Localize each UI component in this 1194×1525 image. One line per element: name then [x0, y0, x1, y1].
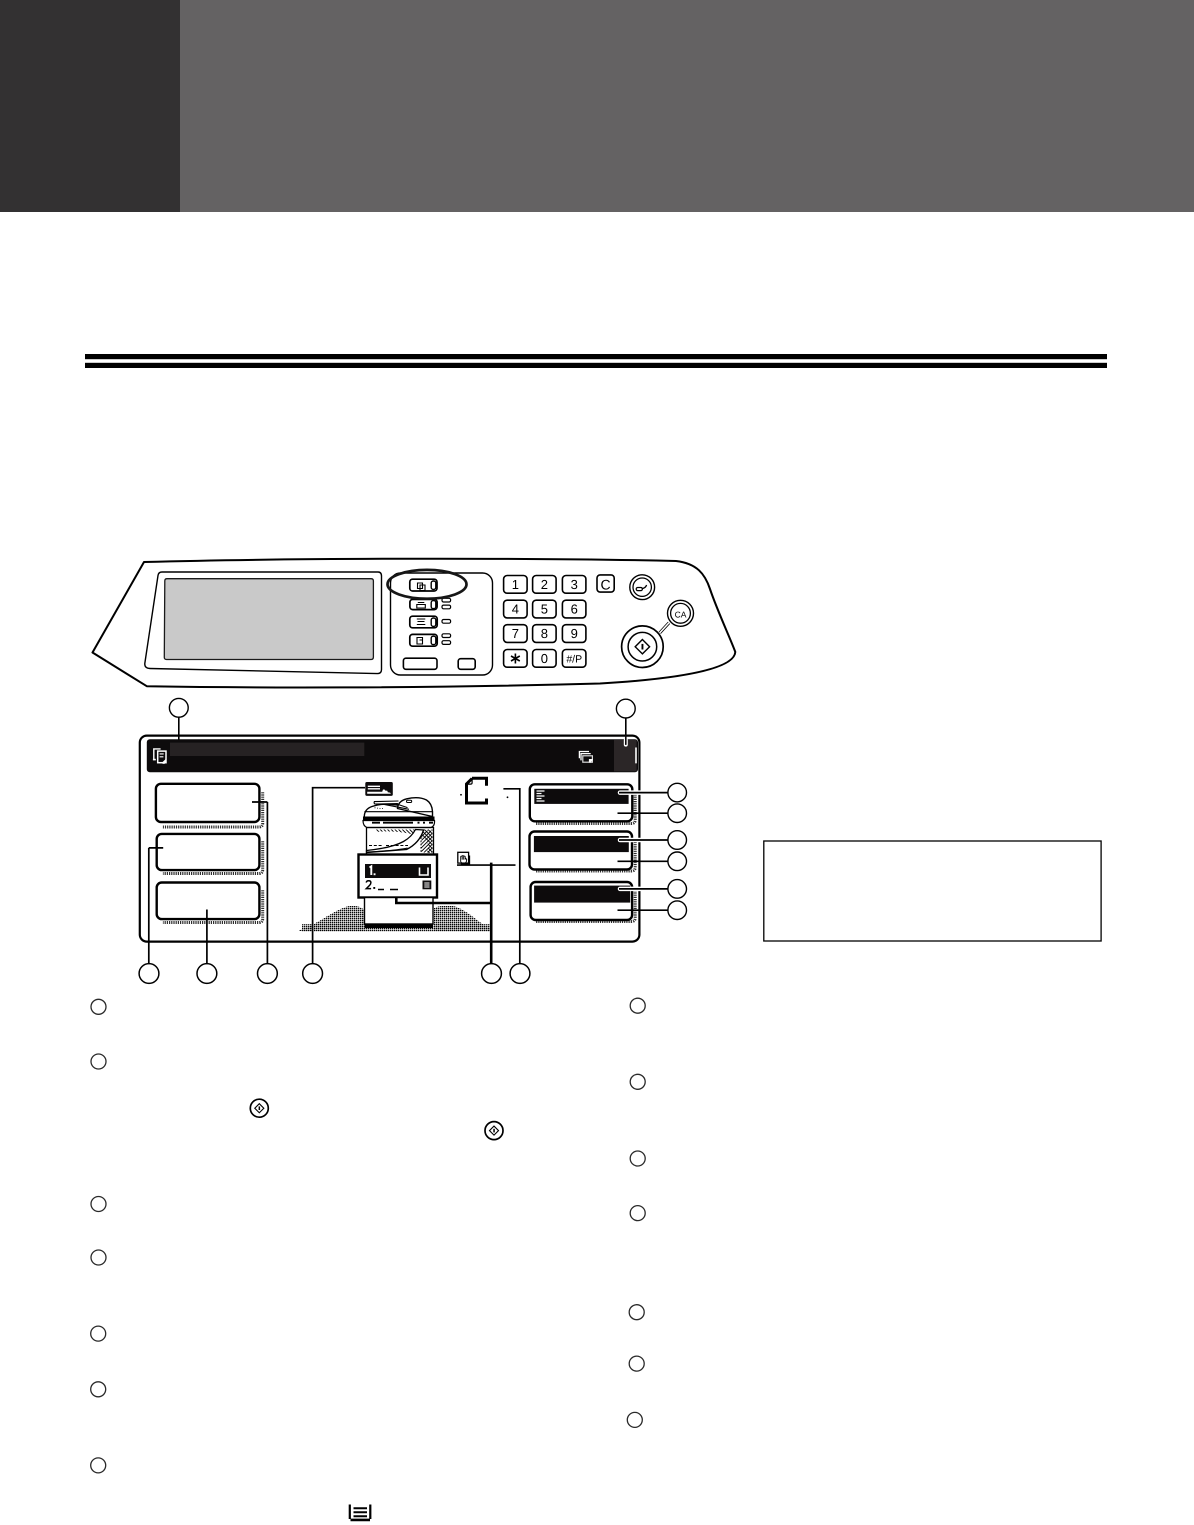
svg-text:6: 6: [571, 602, 578, 617]
svg-text:9: 9: [571, 626, 578, 641]
svg-text:CA: CA: [675, 610, 687, 620]
svg-text:C: C: [601, 576, 611, 592]
svg-text:2: 2: [541, 577, 548, 592]
svg-text:#/P: #/P: [566, 654, 582, 666]
svg-text:7: 7: [512, 626, 519, 641]
svg-text:8: 8: [541, 626, 548, 641]
svg-text:0: 0: [541, 651, 548, 666]
svg-text:3: 3: [571, 577, 578, 592]
svg-text:5: 5: [541, 602, 548, 617]
svg-text:1: 1: [512, 577, 519, 592]
svg-text:4: 4: [512, 602, 519, 617]
